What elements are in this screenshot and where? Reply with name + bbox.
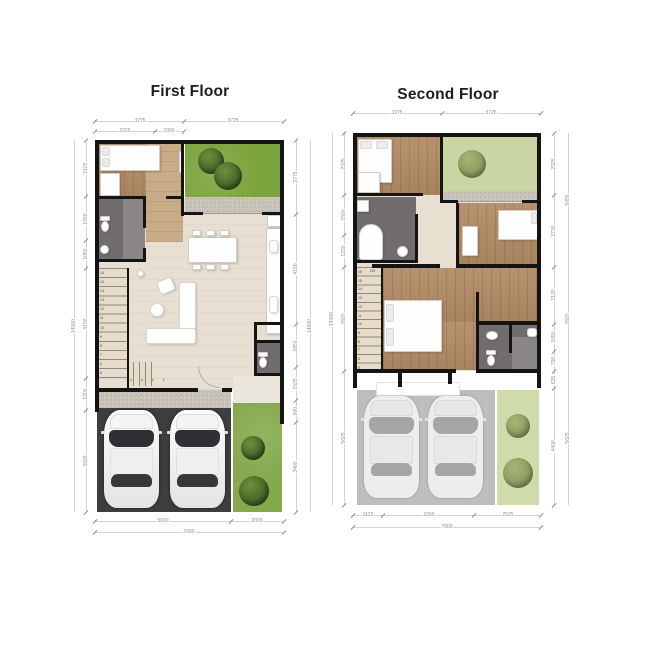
first-porch-gravel (97, 390, 231, 408)
dim-line (296, 140, 297, 512)
sliding-glass-door (203, 213, 262, 214)
chair (206, 264, 215, 270)
dim-label: 2525 (501, 512, 514, 518)
car-rear-window (111, 474, 152, 487)
toilet-icon (101, 221, 109, 232)
wall (143, 196, 146, 228)
car-hood (110, 414, 153, 429)
second-wardrobe-1 (358, 172, 380, 193)
dim-tick (294, 510, 299, 515)
wall (440, 133, 443, 203)
dim-tick (539, 513, 544, 518)
car-windshield (175, 430, 220, 447)
dim-label: 1050 (551, 330, 557, 343)
car-roof (434, 436, 477, 464)
pillow (102, 158, 110, 167)
dim-label: 1200 (83, 387, 89, 400)
car-roof (176, 448, 219, 475)
car-mirror (224, 431, 228, 434)
wall (522, 200, 541, 203)
car-hood (176, 414, 219, 429)
car-windshield (109, 430, 154, 447)
car-rear-window (177, 474, 218, 487)
dim-label: 1050 (83, 247, 89, 260)
dim-label: 7000 (440, 524, 453, 530)
dim-tick (282, 119, 287, 124)
first-stair-turn-numbers: 4 3 2 1 (130, 378, 169, 382)
dim-tick (84, 510, 89, 515)
wall (166, 196, 183, 199)
wall (254, 340, 257, 376)
ghost-bush-icon (506, 414, 530, 438)
wall (254, 373, 284, 376)
dining-table (188, 237, 237, 263)
dim-label: 3725 (484, 110, 497, 116)
car-mirror (482, 418, 486, 421)
ghost-bush-icon (503, 458, 533, 488)
wall (353, 369, 456, 373)
car-mirror (418, 418, 422, 421)
dim-label: 1230 (341, 244, 347, 257)
coffee-table (150, 303, 164, 317)
wall (415, 214, 418, 263)
toilet-icon (259, 357, 267, 368)
wall (222, 388, 232, 392)
car-windshield (369, 417, 414, 435)
dim-label: 750 (551, 356, 557, 366)
dim-label: 2120 (551, 288, 557, 301)
wall (448, 373, 452, 384)
first-shower-area (123, 199, 145, 260)
plant-pot (137, 270, 144, 277)
dim-label: 7000 (182, 529, 195, 535)
car-rear-window (435, 463, 476, 477)
car-windshield (433, 417, 478, 435)
first-stair-numbers: 16 15 14 13 12 11 10 9 8 7 6 5 (100, 269, 104, 378)
dim-label: 5025 (565, 431, 571, 444)
wall (254, 322, 257, 342)
floorplan-sheet: First Floor 16 15 14 13 12 11 10 9 8 7 6… (0, 0, 648, 648)
car-hood (434, 400, 477, 416)
car-mirror (425, 418, 429, 421)
cooktop-icon (269, 296, 278, 313)
wall (537, 133, 541, 388)
dim-label: 14000 (329, 311, 335, 327)
wall (476, 292, 479, 371)
chair (192, 264, 201, 270)
dim-tick (282, 530, 287, 535)
wall (398, 373, 402, 387)
wall (262, 212, 284, 215)
dim-tick (539, 525, 544, 530)
car-icon (101, 410, 162, 510)
dim-label: 1650 (83, 212, 89, 225)
dim-label: 14000 (71, 318, 77, 334)
wall (181, 140, 184, 216)
dim-label: 1500 (341, 208, 347, 221)
dim-label: 3400 (293, 460, 299, 473)
dim-label: 4400 (551, 439, 557, 452)
second-stair-numbers: 16 15 14 13 12 11 10 9 8 7 6 5 (358, 268, 362, 372)
pillow (386, 328, 394, 346)
dim-tick (182, 129, 187, 134)
dim-label: 1050 (162, 128, 175, 134)
sink-icon (100, 245, 109, 254)
dim-tick (282, 519, 287, 524)
pillow (360, 141, 372, 149)
wall (456, 264, 541, 268)
dim-line (95, 121, 284, 122)
sofa (179, 282, 196, 330)
first-wardrobe (100, 173, 120, 196)
wall (476, 369, 541, 373)
dim-label: 3725 (226, 118, 239, 124)
first-floor-title: First Floor (151, 83, 230, 101)
dim-label: 2325 (341, 157, 347, 170)
ghost-car-icon (425, 396, 486, 500)
chair (206, 230, 215, 236)
bathtub-icon (359, 224, 383, 260)
fridge (267, 215, 281, 227)
dim-line (353, 113, 541, 114)
wall (509, 325, 512, 353)
car-roof (370, 436, 413, 464)
sink-icon (486, 331, 498, 340)
chair (220, 264, 229, 270)
first-terrace (233, 376, 282, 403)
car-mirror (158, 431, 162, 434)
wall (95, 388, 198, 392)
shower-tray (527, 328, 537, 337)
dim-label: 2775 (293, 170, 299, 183)
bush-icon (239, 476, 269, 506)
car-icon (167, 410, 228, 510)
dim-label: 1851 (293, 339, 299, 352)
dim-label: 3920 (565, 312, 571, 325)
dim-label: 4150 (83, 317, 89, 330)
wall (95, 140, 284, 144)
wall (381, 267, 383, 371)
washer (357, 200, 369, 212)
dim-label: 3275 (133, 118, 146, 124)
wall (95, 259, 146, 262)
kitchen-sink-icon (269, 240, 278, 253)
car-rear-window (371, 463, 412, 477)
wall (127, 268, 129, 388)
dim-label: 625 (551, 375, 557, 385)
pillow (376, 141, 388, 149)
porch-canopy (376, 382, 460, 396)
dim-label: 4150 (293, 262, 299, 275)
dim-label: 5000 (156, 518, 169, 524)
wall (353, 260, 418, 263)
dim-label: 3275 (390, 110, 403, 116)
sliding-glass-door (458, 201, 522, 202)
tree-icon (214, 162, 242, 190)
dim-label: 1525 (293, 377, 299, 390)
stair-dn-label: DN (370, 269, 375, 273)
roof-tree-icon (458, 150, 486, 178)
dim-label: 2000 (250, 518, 263, 524)
wall (95, 196, 146, 199)
dim-label: 3920 (341, 312, 347, 325)
wall (254, 322, 284, 325)
dim-tick (552, 503, 557, 508)
dim-label: 2325 (551, 157, 557, 170)
wall (181, 212, 203, 215)
car-mirror (167, 431, 171, 434)
wall (254, 340, 284, 343)
wall (353, 193, 423, 196)
sofa-chaise (146, 328, 196, 344)
ghost-car-icon (361, 396, 422, 500)
dim-label: 2125 (83, 161, 89, 174)
bush-icon (241, 436, 265, 460)
wall (353, 133, 541, 137)
wall (456, 203, 459, 267)
dim-label: 5055 (565, 193, 571, 206)
chair (192, 230, 201, 236)
dim-tick (342, 503, 347, 508)
dim-label: 3350 (422, 512, 435, 518)
dim-label: 14000 (307, 318, 313, 334)
dim-tick (539, 111, 544, 116)
pillow (386, 304, 394, 322)
dim-label: 2225 (118, 128, 131, 134)
dim-label: 2730 (551, 224, 557, 237)
first-stair-turn (127, 362, 152, 386)
dim-label: 800 (293, 406, 299, 416)
second-shower (512, 337, 539, 370)
chair (220, 230, 229, 236)
pillow (102, 147, 110, 156)
sink-icon (397, 246, 408, 257)
wall (280, 140, 284, 424)
car-hood (370, 400, 413, 416)
car-mirror (101, 431, 105, 434)
dim-label: 3825 (83, 454, 89, 467)
dim-label: 5025 (341, 431, 347, 444)
second-floor-title: Second Floor (397, 86, 498, 104)
wall (95, 140, 99, 412)
car-roof (110, 448, 153, 475)
toilet-icon (487, 355, 495, 366)
desk (462, 226, 478, 256)
dim-label: 1125 (362, 512, 375, 518)
car-mirror (361, 418, 365, 421)
